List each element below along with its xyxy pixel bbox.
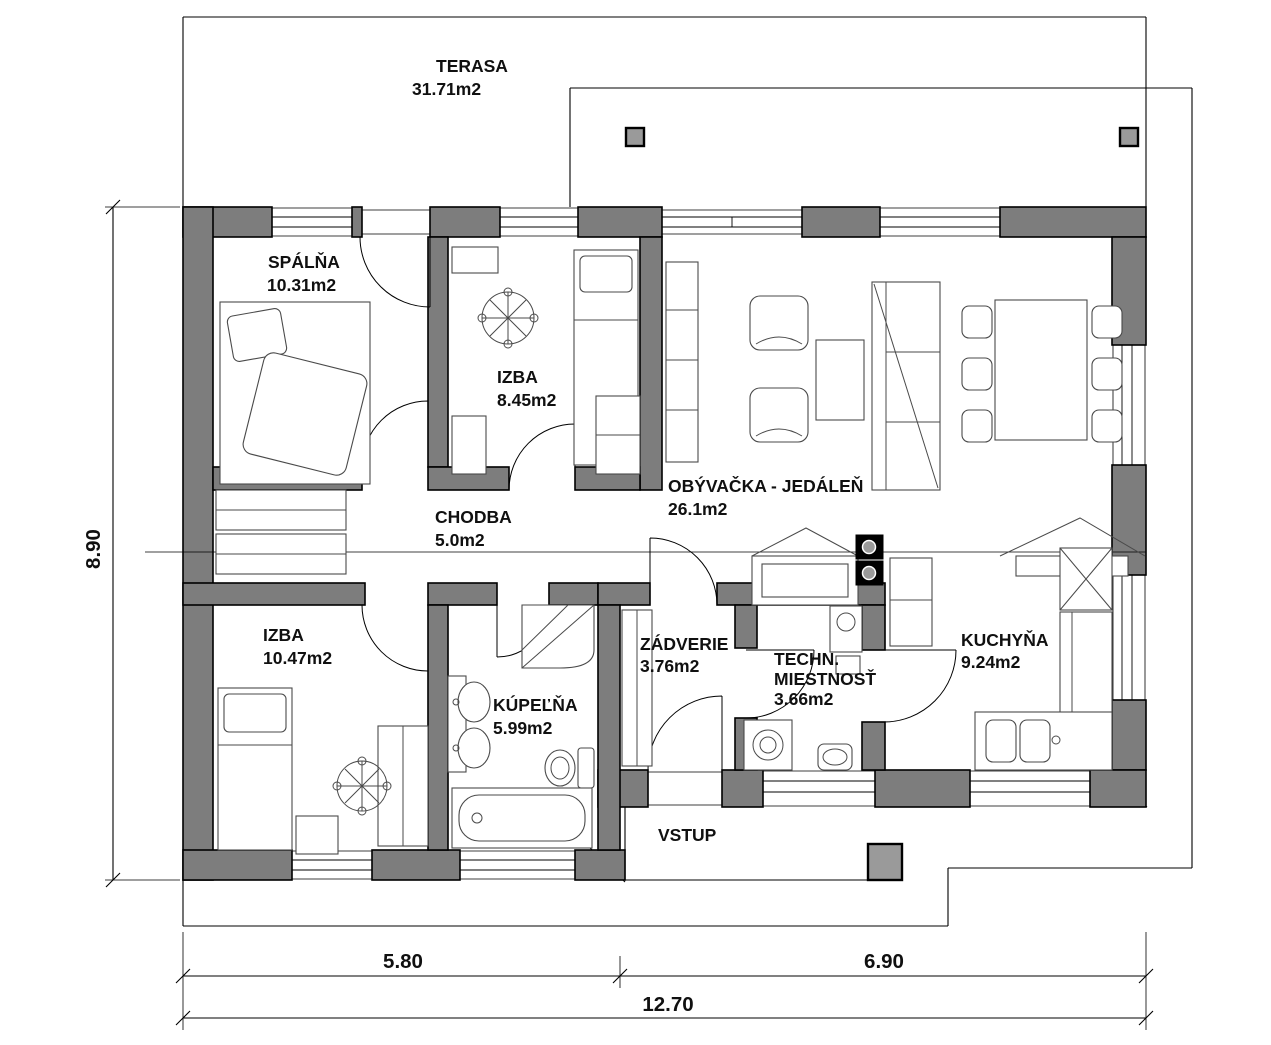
furniture-izba2 (218, 688, 428, 854)
door-spalna-terrace (360, 237, 430, 307)
label-izba1-area: 8.45m2 (497, 390, 557, 410)
label-izba2-area: 10.47m2 (263, 648, 332, 668)
label-obyvacka-name: OBÝVAČKA - JEDÁLEŇ (668, 475, 863, 496)
label-kuchyna-area: 9.24m2 (961, 652, 1021, 672)
terrace-post (626, 128, 644, 146)
door-kuchyna (884, 650, 956, 722)
label-kupelna-area: 5.99m2 (493, 718, 553, 738)
door-izba2 (362, 605, 428, 671)
dim-height: 8.90 (82, 529, 105, 569)
label-spalna-name: SPÁLŇA (268, 251, 340, 272)
label-chodba-area: 5.0m2 (435, 530, 485, 550)
label-techn-line1: TECHN. (774, 649, 839, 669)
dim-total: 12.70 (642, 993, 693, 1016)
label-techn-line2: MIESTNOSŤ (774, 668, 876, 689)
label-kuchyna-name: KUCHYŇA (961, 629, 1049, 650)
door-entrance (648, 696, 722, 770)
label-terasa-area: 31.71m2 (412, 79, 481, 99)
label-chodba-name: CHODBA (435, 507, 512, 527)
terrace-post (1120, 128, 1138, 146)
label-techn-area: 3.66m2 (774, 689, 834, 709)
floor-plan-canvas: TERASA 31.71m2 SPÁLŇA 10.31m2 IZBA 8.45m… (0, 0, 1271, 1045)
floor-plan-page: TERASA 31.71m2 SPÁLŇA 10.31m2 IZBA 8.45m… (0, 0, 1271, 1045)
label-zadverie-area: 3.76m2 (640, 656, 700, 676)
label-terasa-name: TERASA (436, 56, 508, 76)
door-spalna (362, 401, 428, 467)
ceiling-fan-icon (478, 288, 538, 348)
door-izba1 (509, 424, 575, 490)
label-izba2-name: IZBA (263, 625, 304, 645)
door-zadverie-chodba (650, 538, 717, 605)
dim-bottom-right: 6.90 (864, 950, 904, 973)
furniture-izba1 (452, 247, 640, 474)
label-spalna-area: 10.31m2 (267, 275, 336, 295)
label-izba1-name: IZBA (497, 367, 538, 387)
label-vstup-name: VSTUP (658, 825, 717, 845)
dim-bottom-left: 5.80 (383, 950, 423, 973)
furniture-obyvacka (666, 262, 1145, 576)
label-zadverie-name: ZÁDVERIE (640, 633, 728, 654)
label-obyvacka-area: 26.1m2 (668, 499, 728, 519)
porch-post (868, 844, 902, 880)
label-kupelna-name: KÚPEĽŇA (493, 694, 578, 715)
furniture-spalna (216, 302, 370, 574)
